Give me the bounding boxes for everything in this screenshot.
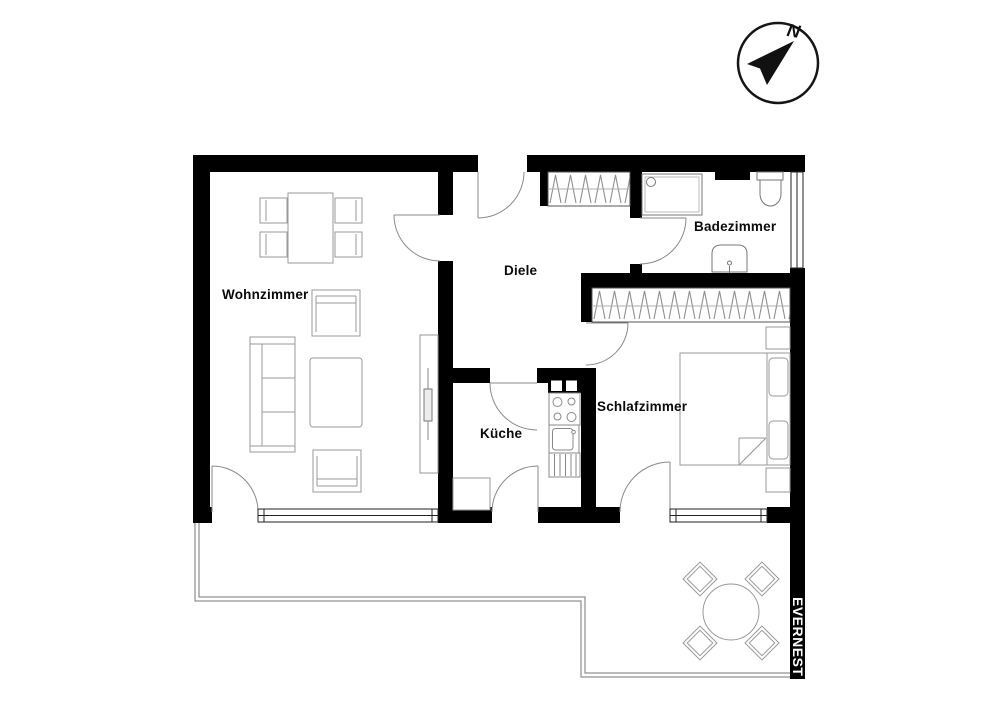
badezimmer-door (640, 218, 686, 264)
wohnzimmer-window (258, 509, 438, 522)
schlafzimmer-terrace-door (620, 462, 670, 512)
kitchen-sink (549, 425, 579, 453)
coffee-table (310, 358, 362, 427)
compass (738, 23, 818, 103)
dining-table (288, 193, 333, 263)
armchair-top (312, 290, 360, 336)
room-label-diele: Diele (504, 263, 537, 278)
wardrobe (592, 288, 790, 322)
armchair-bottom (313, 450, 361, 492)
room-label-kueche: Küche (480, 426, 522, 441)
bed (680, 353, 790, 465)
floorplan-canvas: Wohnzimmer Diele Küche Badezimmer Schlaf… (0, 0, 1000, 707)
room-label-schlafzimmer: Schlafzimmer (597, 399, 687, 414)
north-arrow-icon (747, 41, 794, 85)
brand-bar: EVERNEST (790, 523, 805, 679)
hall-closet (548, 172, 630, 206)
kitchen-stove (549, 393, 580, 425)
kitchen-upper-unit (548, 378, 581, 393)
toilet (757, 172, 783, 206)
badezimmer-window (791, 172, 803, 268)
room-label-wohnzimmer: Wohnzimmer (222, 287, 309, 302)
terrace-table (703, 584, 759, 640)
schlafzimmer-door (586, 323, 628, 365)
wohnzimmer-terrace-door (212, 466, 258, 512)
shower (642, 174, 702, 215)
pillow (769, 421, 788, 459)
room-label-badezimmer: Badezimmer (694, 219, 776, 234)
schlafzimmer-window (670, 509, 767, 522)
floorplan-drawing (0, 0, 1000, 707)
bath-sink (712, 245, 747, 273)
kitchen-drawers (549, 453, 580, 477)
entrance-door (478, 172, 524, 218)
kueche-door (490, 383, 537, 430)
wohnzimmer-door (394, 215, 440, 261)
pillow (769, 358, 788, 396)
sofa (250, 337, 295, 452)
kitchen-cabinet (453, 478, 490, 510)
kueche-terrace-door (492, 466, 538, 512)
brand-name: EVERNEST (790, 523, 805, 679)
